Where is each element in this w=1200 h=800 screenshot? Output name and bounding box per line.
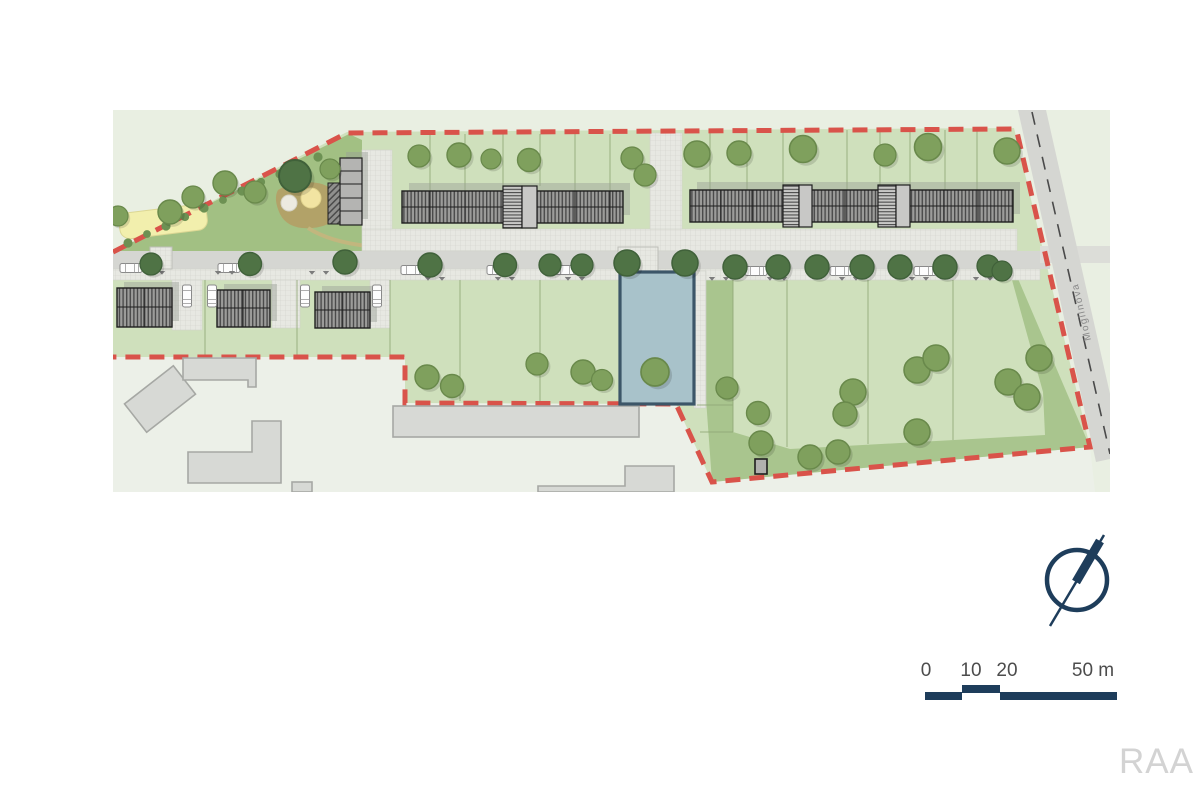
scale-segment-2 <box>962 685 1000 693</box>
scale-label-20: 20 <box>984 660 1030 682</box>
scale-label-0: 0 <box>903 660 949 682</box>
north-sidewalk <box>362 229 1017 251</box>
north-arrow <box>1036 524 1120 634</box>
scale-label-50m: 50 m <box>1070 660 1116 682</box>
scale-segment-1 <box>925 692 962 700</box>
playground-circle-white <box>281 195 297 211</box>
garden-shed <box>755 459 767 474</box>
terrace-block-a <box>402 183 630 228</box>
scale-bar: 0 10 20 50 m <box>922 660 1122 702</box>
terrace-block-b <box>690 182 1020 227</box>
carport <box>328 183 340 224</box>
logo-raa: RAA <box>1119 742 1194 782</box>
south-east-parcels <box>733 280 1045 449</box>
house-row-south <box>117 282 377 328</box>
sheet: Mogilnova 0 10 20 50 m RAA <box>0 0 1200 800</box>
north-arrow-needle-head <box>1076 541 1100 582</box>
plot-side-path <box>694 271 706 408</box>
scale-segment-3 <box>1000 692 1117 700</box>
